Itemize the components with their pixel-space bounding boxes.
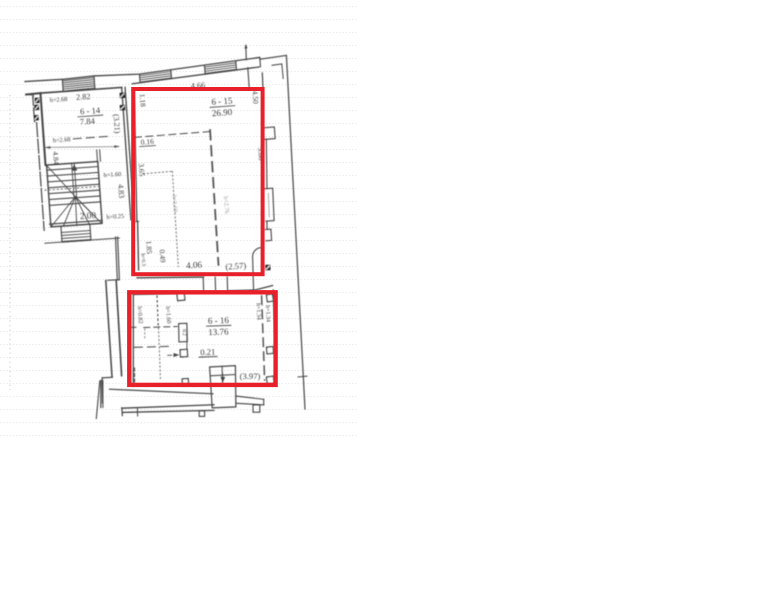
svg-text:h=2.68: h=2.68: [53, 136, 71, 144]
svg-text:4.84: 4.84: [51, 151, 61, 165]
svg-text:(3.21): (3.21): [112, 114, 122, 134]
svg-text:2.82: 2.82: [76, 92, 91, 102]
svg-text:4.50: 4.50: [251, 90, 261, 104]
svg-text:1.85: 1.85: [144, 240, 154, 254]
svg-text:6 - 14: 6 - 14: [80, 105, 101, 116]
svg-text:h=1.60: h=1.60: [103, 171, 121, 179]
svg-text:0.2: 0.2: [181, 329, 187, 336]
svg-text:h=1.60: h=1.60: [171, 195, 179, 213]
svg-text:0.49: 0.49: [158, 249, 168, 263]
svg-text:2.00: 2.00: [80, 210, 97, 221]
svg-text:26.90: 26.90: [212, 107, 233, 118]
svg-text:3.65: 3.65: [137, 163, 147, 177]
svg-text:h=1.34: h=1.34: [264, 305, 271, 322]
svg-text:h=1.34: h=1.34: [255, 303, 262, 320]
svg-text:13.76: 13.76: [208, 326, 229, 337]
svg-text:h=2.68: h=2.68: [50, 96, 68, 104]
svg-text:h=0.3: h=0.3: [139, 253, 146, 266]
svg-text:6 - 16: 6 - 16: [208, 315, 230, 326]
svg-text:0.21: 0.21: [200, 347, 215, 358]
svg-text:h=0.82: h=0.82: [136, 306, 144, 324]
svg-text:h=0.25: h=0.25: [106, 213, 124, 221]
svg-text:h=1.60: h=1.60: [164, 306, 172, 324]
svg-text:0.16: 0.16: [140, 137, 154, 147]
svg-text:6 - 15: 6 - 15: [211, 95, 233, 106]
svg-text:(3.97): (3.97): [240, 371, 261, 381]
svg-text:4.06: 4.06: [186, 260, 203, 271]
svg-text:(2.57): (2.57): [225, 260, 247, 271]
svg-text:1.18: 1.18: [138, 93, 148, 107]
svg-text:4.83: 4.83: [116, 184, 126, 199]
svg-text:h=2.76: h=2.76: [222, 196, 230, 214]
svg-text:7.84: 7.84: [79, 116, 95, 127]
